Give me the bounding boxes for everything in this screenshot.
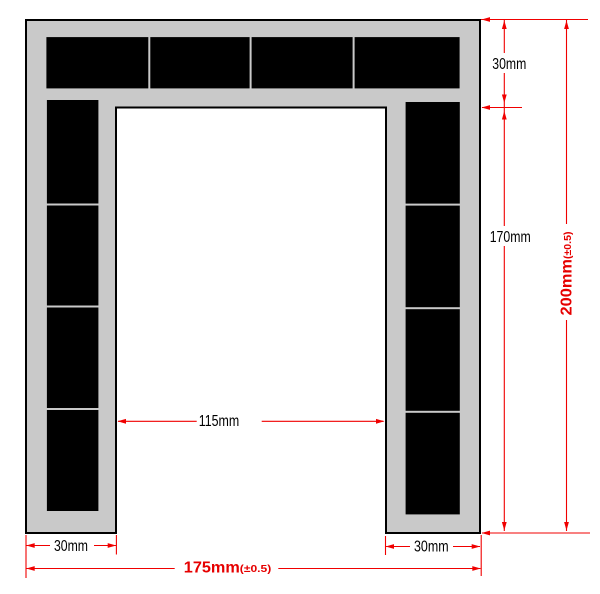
svg-text:30mm: 30mm <box>492 56 526 73</box>
svg-text:30mm: 30mm <box>54 538 88 555</box>
svg-text:30mm: 30mm <box>414 539 449 556</box>
svg-text:170mm: 170mm <box>490 229 531 246</box>
svg-text:175mm(±0.5): 175mm(±0.5) <box>184 560 271 577</box>
svg-text:115mm: 115mm <box>199 413 240 430</box>
